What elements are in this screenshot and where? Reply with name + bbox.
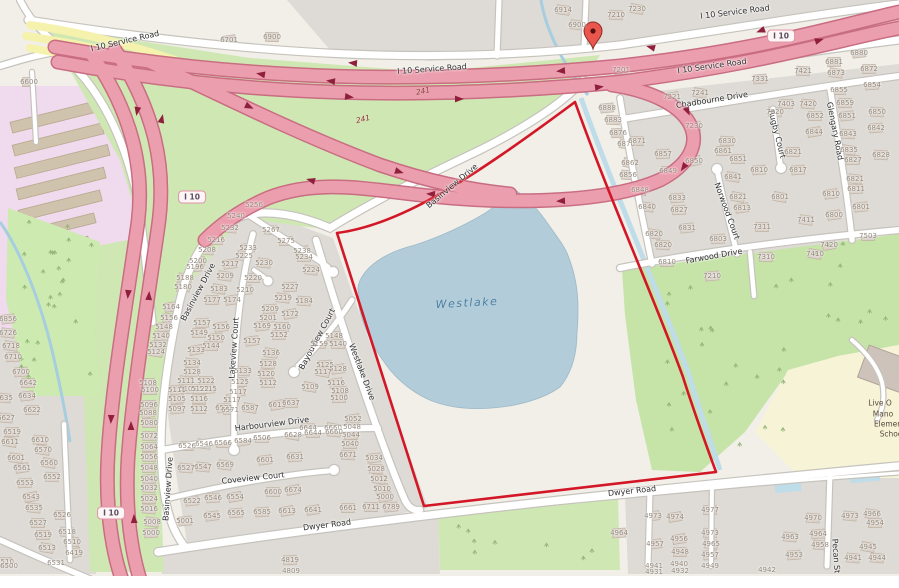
map-bottom-margin bbox=[0, 576, 899, 588]
map-svg bbox=[0, 0, 899, 588]
map-canvas: I 10 Service RoadI 10 Service RoadI 10 S… bbox=[0, 0, 899, 588]
